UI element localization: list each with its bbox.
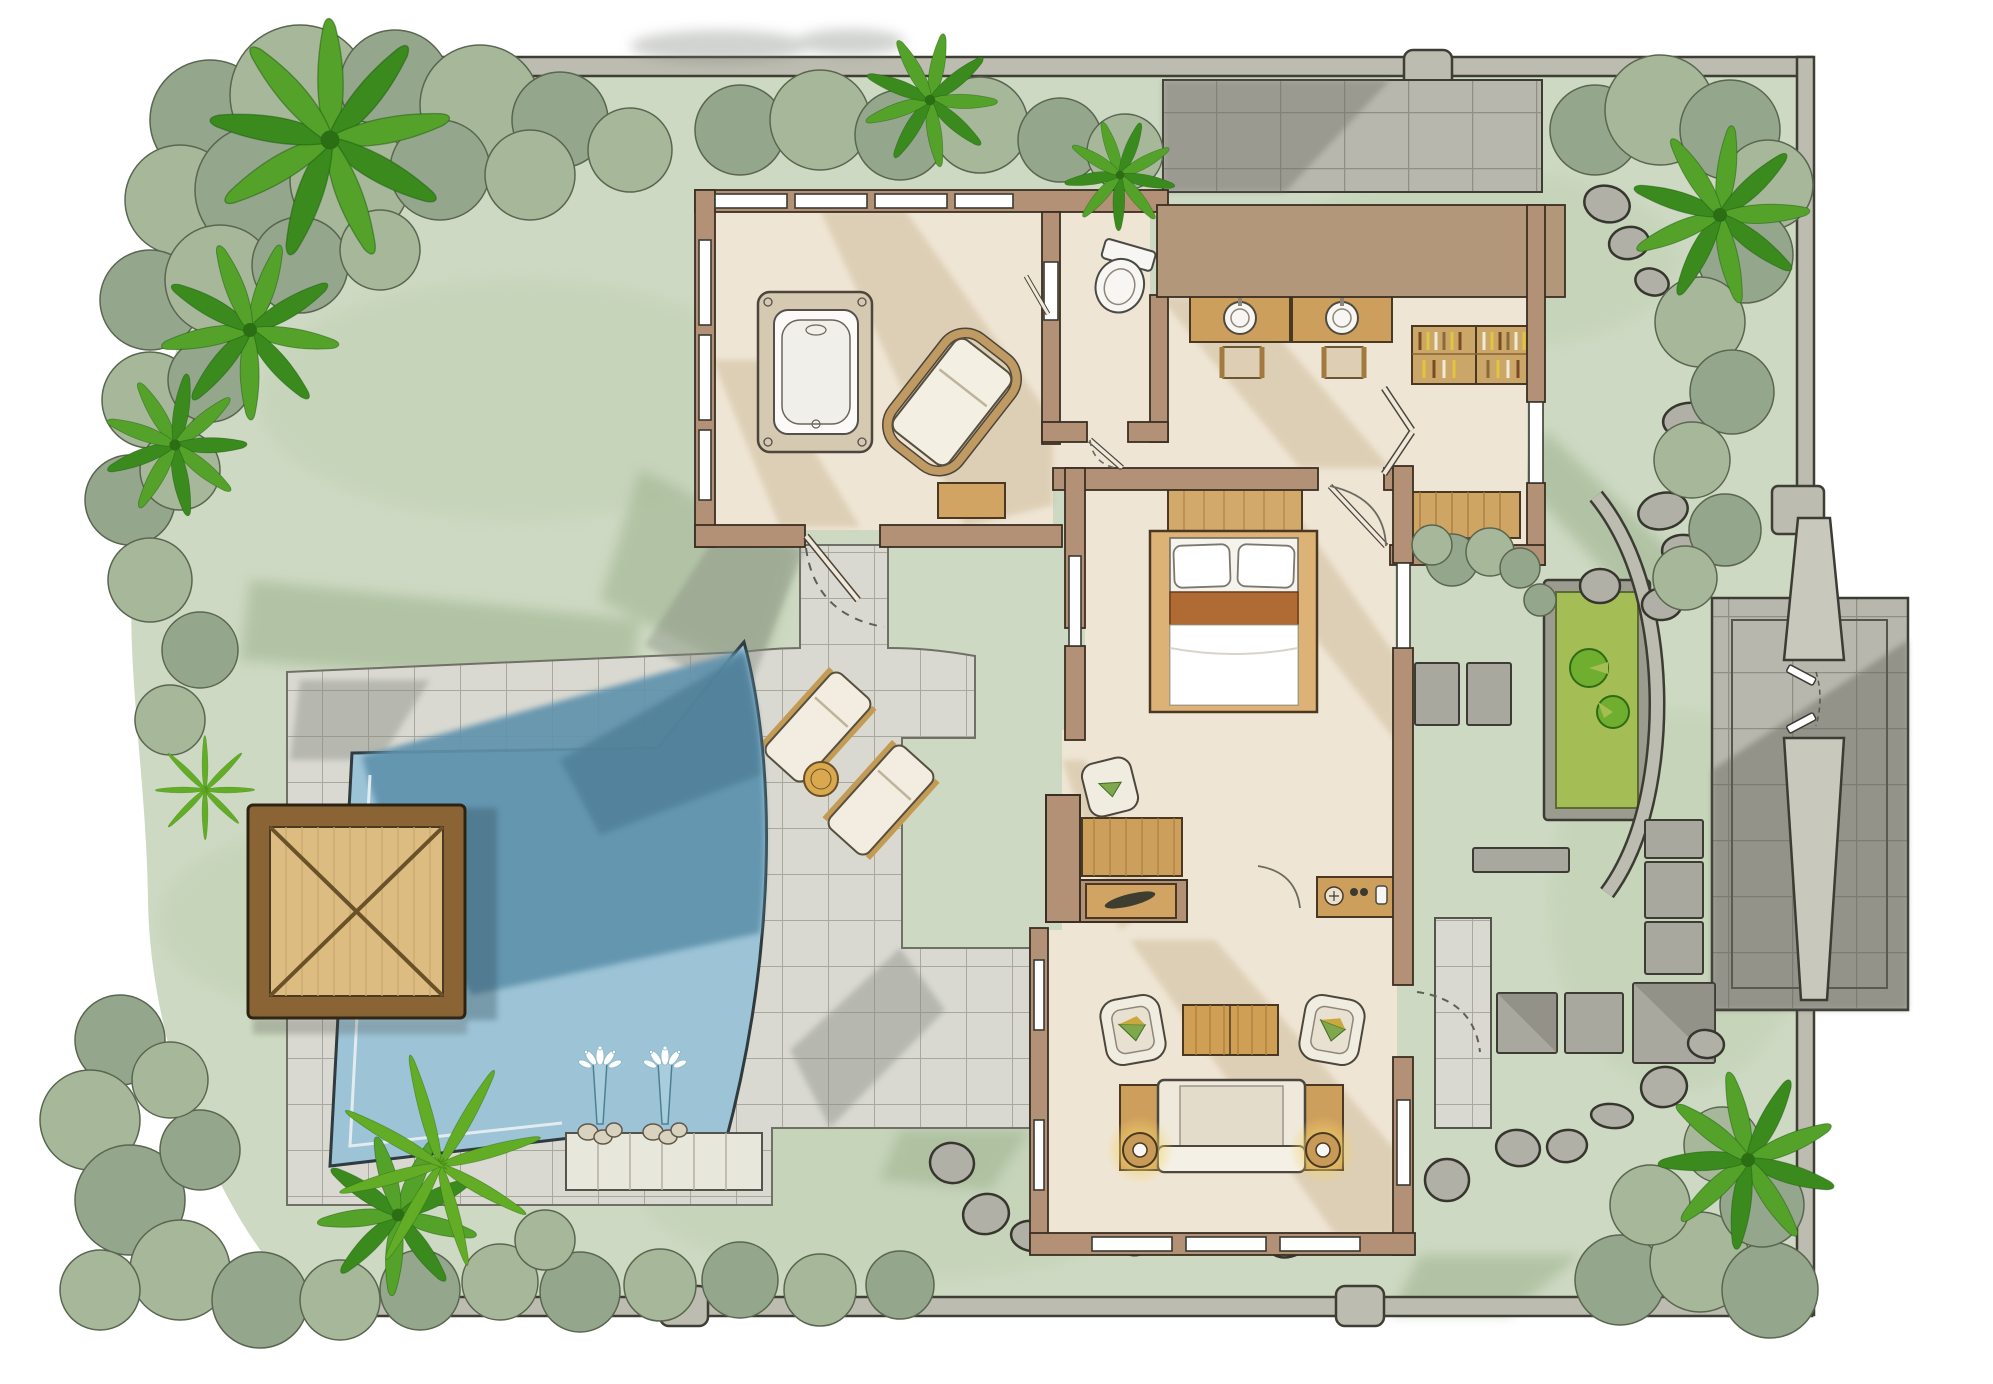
bathtub	[758, 292, 872, 452]
bed	[1150, 487, 1317, 712]
vanity-wall-band	[1157, 205, 1565, 297]
duvet	[1170, 625, 1298, 705]
living-room	[1098, 992, 1368, 1184]
desk	[1082, 818, 1182, 876]
bathroom-bench	[938, 483, 1005, 518]
table-lamp	[1289, 1116, 1357, 1184]
bed-runner	[1170, 592, 1298, 625]
leaf-bench	[1086, 884, 1176, 918]
armchair	[1297, 992, 1368, 1067]
table-lamp	[1106, 1116, 1174, 1184]
patio-side-table	[804, 762, 838, 796]
gazebo	[248, 805, 467, 1034]
wall-post	[1336, 1286, 1384, 1326]
pillow	[1237, 544, 1294, 588]
headboard-bench	[1168, 487, 1302, 531]
lily-pond	[1544, 580, 1650, 820]
floor-plan-canvas	[0, 0, 1993, 1384]
gazebo-shadow	[463, 808, 497, 1020]
armchair	[1098, 992, 1169, 1067]
wardrobe	[1412, 326, 1540, 384]
parking-court	[1163, 80, 1542, 192]
coffee-table	[1183, 1005, 1278, 1055]
pillow	[1173, 544, 1230, 588]
